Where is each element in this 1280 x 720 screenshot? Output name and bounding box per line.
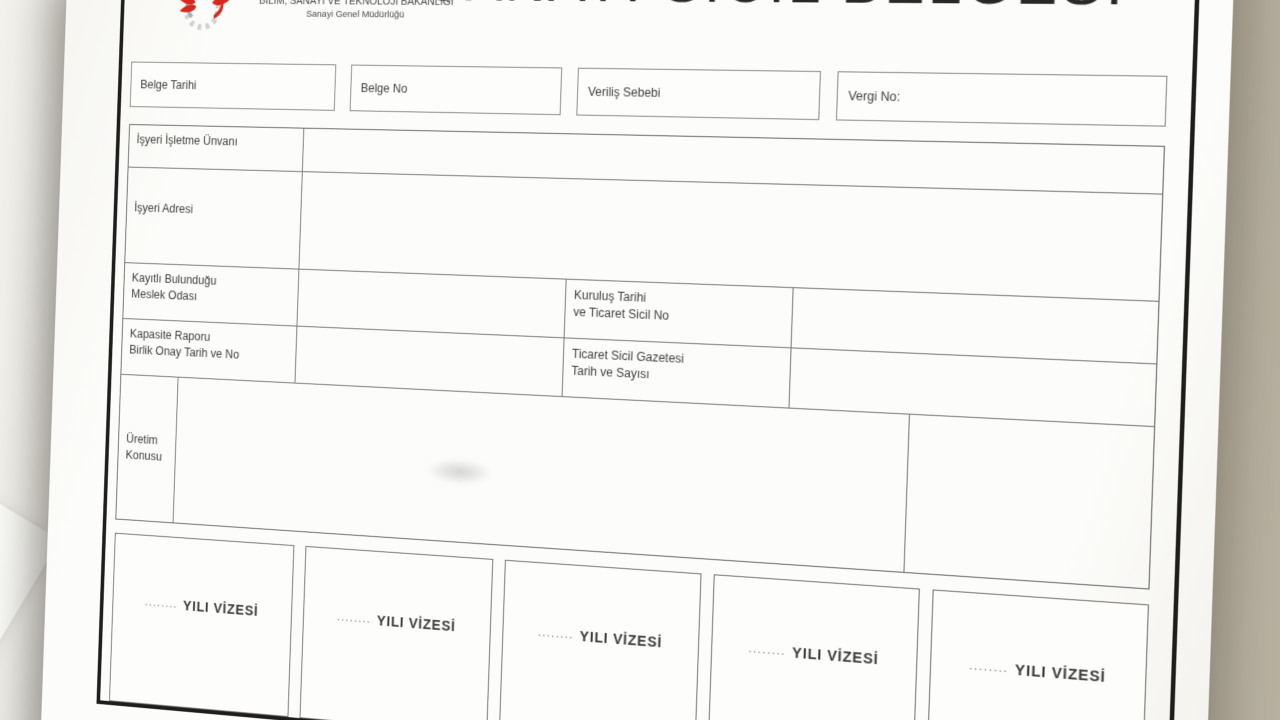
form-table: İşyeri İşletme Ünvanı İşyeri Adresi Kayı… [115, 124, 1165, 590]
meslek-odasi-label: Kayıtlı Bulunduğu Meslek Odası [123, 263, 299, 326]
ticaret-gazetesi-label: Ticaret Sicil Gazetesi Tarih ve Sayısı [563, 338, 792, 407]
field-verilis-sebebi: Veriliş Sebebi [576, 68, 821, 120]
field-belge-tarihi: Belge Tarihi [130, 62, 337, 111]
field-belge-tarihi-label: Belge Tarihi [140, 78, 197, 92]
kapasite-raporu-label: Kapasite Raporu Birlik Onay Tarih ve No [121, 319, 297, 383]
meslek-odasi-value [297, 270, 566, 338]
form-frame: T.C. BİLİM, SANAYİ VE TEKNOLOJİ BAKANLIĞ… [96, 0, 1200, 720]
vize-box-3: ........ YILI VİZESİ [499, 560, 702, 720]
isyeri-adresi-label: İşyeri Adresi [125, 168, 303, 269]
uretim-konusu-right-cell [904, 415, 1154, 589]
field-verilis-sebebi-label: Veriliş Sebebi [588, 85, 661, 100]
field-vergi-no: Vergi No: [836, 71, 1168, 126]
form-header: T.C. BİLİM, SANAYİ VE TEKNOLOJİ BAKANLIĞ… [132, 0, 1172, 65]
paper-smudge [426, 457, 494, 487]
vize-box-1: ........ YILI VİZESİ [109, 533, 294, 717]
ministry-emblem-icon [173, 0, 235, 36]
vize-box-4: ........ YILI VİZESİ [707, 574, 919, 720]
field-belge-no-label: Belge No [361, 81, 408, 95]
field-belge-no: Belge No [350, 65, 563, 116]
certificate-paper: T.C. BİLİM, SANAYİ VE TEKNOLOJİ BAKANLIĞ… [34, 0, 1236, 720]
isyeri-unvani-label: İşyeri İşletme Ünvanı [129, 125, 305, 171]
document-title: SANAYİ SİCİL BELGESİ [426, 0, 1129, 19]
vize-box-2: ........ YILI VİZESİ [300, 546, 494, 720]
top-fields-row: Belge Tarihi Belge No Veriliş Sebebi Ver… [130, 62, 1168, 127]
vize-box-5: ........ YILI VİZESİ [926, 589, 1149, 720]
kurulus-tarihi-label: Kuruluş Tarihi ve Ticaret Sicil No [565, 280, 794, 348]
uretim-konusu-label: Üretim Konusu [116, 375, 178, 523]
field-vergi-no-label: Vergi No: [848, 89, 900, 104]
